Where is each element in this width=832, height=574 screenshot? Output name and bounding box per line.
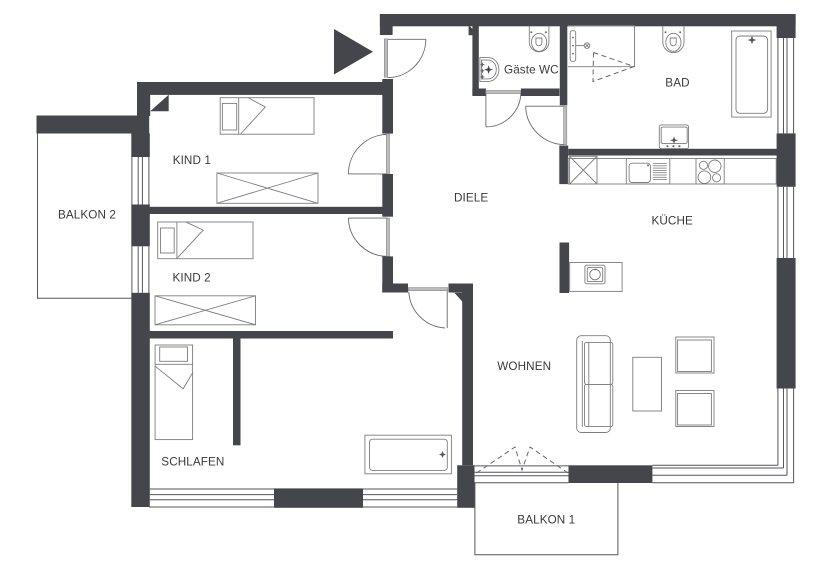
svg-text:BALKON 2: BALKON 2 [58,208,116,221]
svg-text:KÜCHE: KÜCHE [652,215,694,228]
svg-text:BALKON 1: BALKON 1 [517,514,575,527]
svg-text:Gäste WC: Gäste WC [504,64,559,77]
svg-text:BAD: BAD [665,77,689,90]
svg-text:DIELE: DIELE [454,192,488,205]
svg-text:WOHNEN: WOHNEN [497,360,551,373]
svg-text:KIND 2: KIND 2 [173,272,211,285]
svg-text:KIND 1: KIND 1 [173,154,211,167]
svg-text:SCHLAFEN: SCHLAFEN [161,456,224,469]
